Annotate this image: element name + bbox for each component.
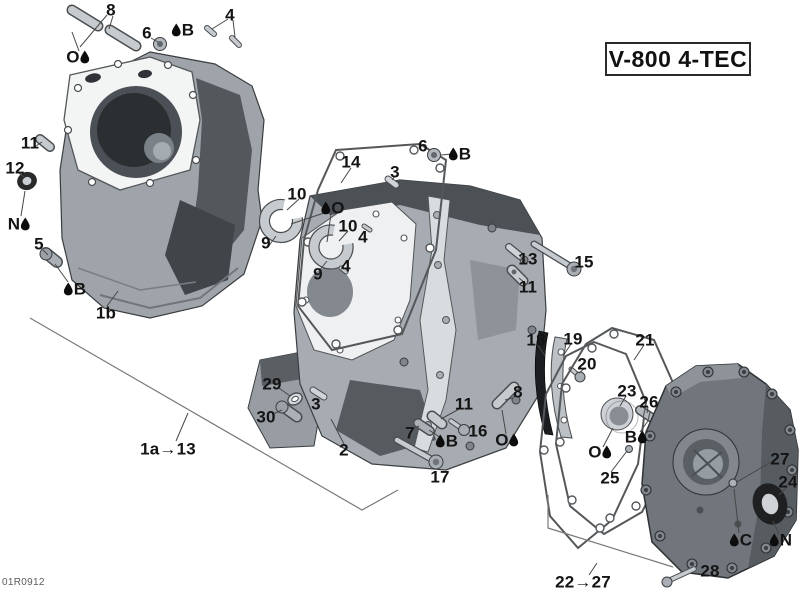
callout-23: 23 — [617, 383, 636, 400]
callout-label: 30 — [256, 409, 275, 426]
callout-label: B — [459, 146, 471, 163]
callout-O: O — [66, 49, 89, 66]
callout-label: 1a→13 — [140, 441, 196, 458]
callout-22-27: 22→27 — [555, 574, 611, 591]
callout-15: 15 — [574, 254, 593, 271]
callout-B: B — [436, 433, 458, 450]
callout-label: 3 — [390, 164, 400, 181]
callout-25: 25 — [600, 470, 619, 487]
callout-label: 24 — [778, 474, 797, 491]
callout-O: O — [588, 444, 611, 461]
callout-label: 10 — [287, 186, 306, 203]
callout-label: 16 — [468, 423, 487, 440]
callout-3: 3 — [311, 396, 321, 413]
parts-diagram-page: V-800 4-TEC 01R0912 8O6B41112N5B1b1436B1… — [0, 0, 800, 594]
callout-11: 11 — [455, 396, 473, 413]
callout-N: N — [8, 216, 30, 233]
callout-4: 4 — [358, 229, 368, 246]
callout-label: 28 — [700, 563, 719, 580]
callout-10: 10 — [287, 186, 306, 203]
callout-label: O — [495, 432, 508, 449]
callout-label: 26 — [639, 394, 658, 411]
callout-label: O — [66, 49, 79, 66]
oil-droplet-icon — [730, 534, 739, 547]
callout-label: 27 — [770, 451, 789, 468]
callout-6: 6 — [418, 138, 428, 155]
oil-droplet-icon — [770, 534, 779, 547]
callout-label: 22→27 — [555, 574, 611, 591]
callout-label: B — [625, 429, 637, 446]
oil-droplet-icon — [64, 283, 73, 296]
oil-droplet-icon — [21, 218, 30, 231]
callout-label: 11 — [21, 135, 39, 152]
callout-21: 21 — [635, 332, 654, 349]
leader-line — [176, 413, 188, 441]
callout-label: 17 — [430, 469, 449, 486]
bolt-28-art — [662, 569, 694, 587]
callout-B: B — [64, 281, 86, 298]
oil-droplet-icon — [81, 51, 90, 64]
cylinder-block-art — [60, 52, 264, 318]
callout-30: 30 — [256, 409, 275, 426]
callout-label: 9 — [261, 235, 271, 252]
callout-9: 9 — [313, 266, 323, 283]
nut-6-art — [154, 38, 167, 51]
callout-11: 11 — [519, 279, 537, 296]
callout-11: 11 — [21, 135, 39, 152]
callout-16: 16 — [468, 423, 487, 440]
callout-label: 4 — [225, 7, 235, 24]
callout-29: 29 — [262, 376, 281, 393]
callout-label: B — [182, 22, 194, 39]
callout-label: 15 — [574, 254, 593, 271]
callout-O: O — [321, 200, 344, 217]
callout-13: 13 — [518, 251, 537, 268]
oil-droplet-icon — [510, 434, 519, 447]
oil-droplet-icon — [449, 148, 458, 161]
callout-label: 5 — [34, 236, 44, 253]
model-plate-text: V-800 4-TEC — [609, 46, 747, 73]
callout-label: 13 — [518, 251, 537, 268]
callout-label: 6 — [142, 25, 152, 42]
callout-label: B — [446, 433, 458, 450]
callout-label: 25 — [600, 470, 619, 487]
callout-label: 19 — [563, 331, 582, 348]
callout-label: 2 — [339, 442, 349, 459]
callout-4: 4 — [341, 258, 351, 275]
callout-C: C — [730, 532, 752, 549]
leader-line — [55, 264, 68, 282]
callout-26: 26 — [639, 394, 658, 411]
oil-droplet-icon — [172, 24, 181, 37]
callout-12: 12 — [5, 160, 24, 177]
callout-label: 12 — [5, 160, 24, 177]
callout-18: 18 — [526, 332, 545, 349]
callout-20: 20 — [577, 356, 596, 373]
callout-label: 6 — [418, 138, 428, 155]
callout-label: O — [331, 200, 344, 217]
callout-6: 6 — [142, 25, 152, 42]
callout-N: N — [770, 532, 792, 549]
callout-1a-13: 1a→13 — [140, 441, 196, 458]
callout-label: 20 — [577, 356, 596, 373]
leader-line — [21, 191, 25, 216]
callout-24: 24 — [778, 474, 797, 491]
exploded-view-artwork — [0, 0, 800, 594]
callout-1b: 1b — [96, 305, 116, 322]
callout-19: 19 — [563, 331, 582, 348]
callout-label: 11 — [455, 396, 473, 413]
callout-5: 5 — [34, 236, 44, 253]
callout-B: B — [449, 146, 471, 163]
callout-7: 7 — [405, 425, 415, 442]
callout-label: 4 — [341, 258, 351, 275]
callout-label: B — [74, 281, 86, 298]
callout-B: B — [625, 429, 647, 446]
callout-label: 8 — [106, 2, 116, 19]
callout-label: 14 — [341, 154, 360, 171]
oil-droplet-icon — [603, 446, 612, 459]
callout-label: N — [8, 216, 20, 233]
callout-label: 23 — [617, 383, 636, 400]
callout-9: 9 — [261, 235, 271, 252]
callout-O: O — [495, 432, 518, 449]
callout-label: 1b — [96, 305, 116, 322]
callout-27: 27 — [770, 451, 789, 468]
callout-B: B — [172, 22, 194, 39]
callout-10: 10 — [338, 218, 357, 235]
callout-label: 18 — [526, 332, 545, 349]
callout-2: 2 — [339, 442, 349, 459]
callout-label: 8 — [513, 384, 523, 401]
callout-label: N — [780, 532, 792, 549]
callout-label: 4 — [358, 229, 368, 246]
callout-3: 3 — [390, 164, 400, 181]
callout-label: 9 — [313, 266, 323, 283]
oil-droplet-icon — [321, 202, 330, 215]
callout-14: 14 — [341, 154, 360, 171]
callout-8: 8 — [106, 2, 116, 19]
callout-label: 7 — [405, 425, 415, 442]
doc-code: 01R0912 — [2, 577, 45, 588]
oil-droplet-icon — [638, 431, 647, 444]
callout-17: 17 — [430, 469, 449, 486]
callout-label: 10 — [338, 218, 357, 235]
callout-label: 29 — [262, 376, 281, 393]
callout-4: 4 — [225, 7, 235, 24]
callout-label: 21 — [635, 332, 654, 349]
callout-label: 3 — [311, 396, 321, 413]
callout-28: 28 — [700, 563, 719, 580]
oil-droplet-icon — [436, 435, 445, 448]
model-plate: V-800 4-TEC — [605, 42, 751, 76]
callout-8: 8 — [513, 384, 523, 401]
callout-label: 11 — [519, 279, 537, 296]
callout-label: C — [740, 532, 752, 549]
callout-label: O — [588, 444, 601, 461]
